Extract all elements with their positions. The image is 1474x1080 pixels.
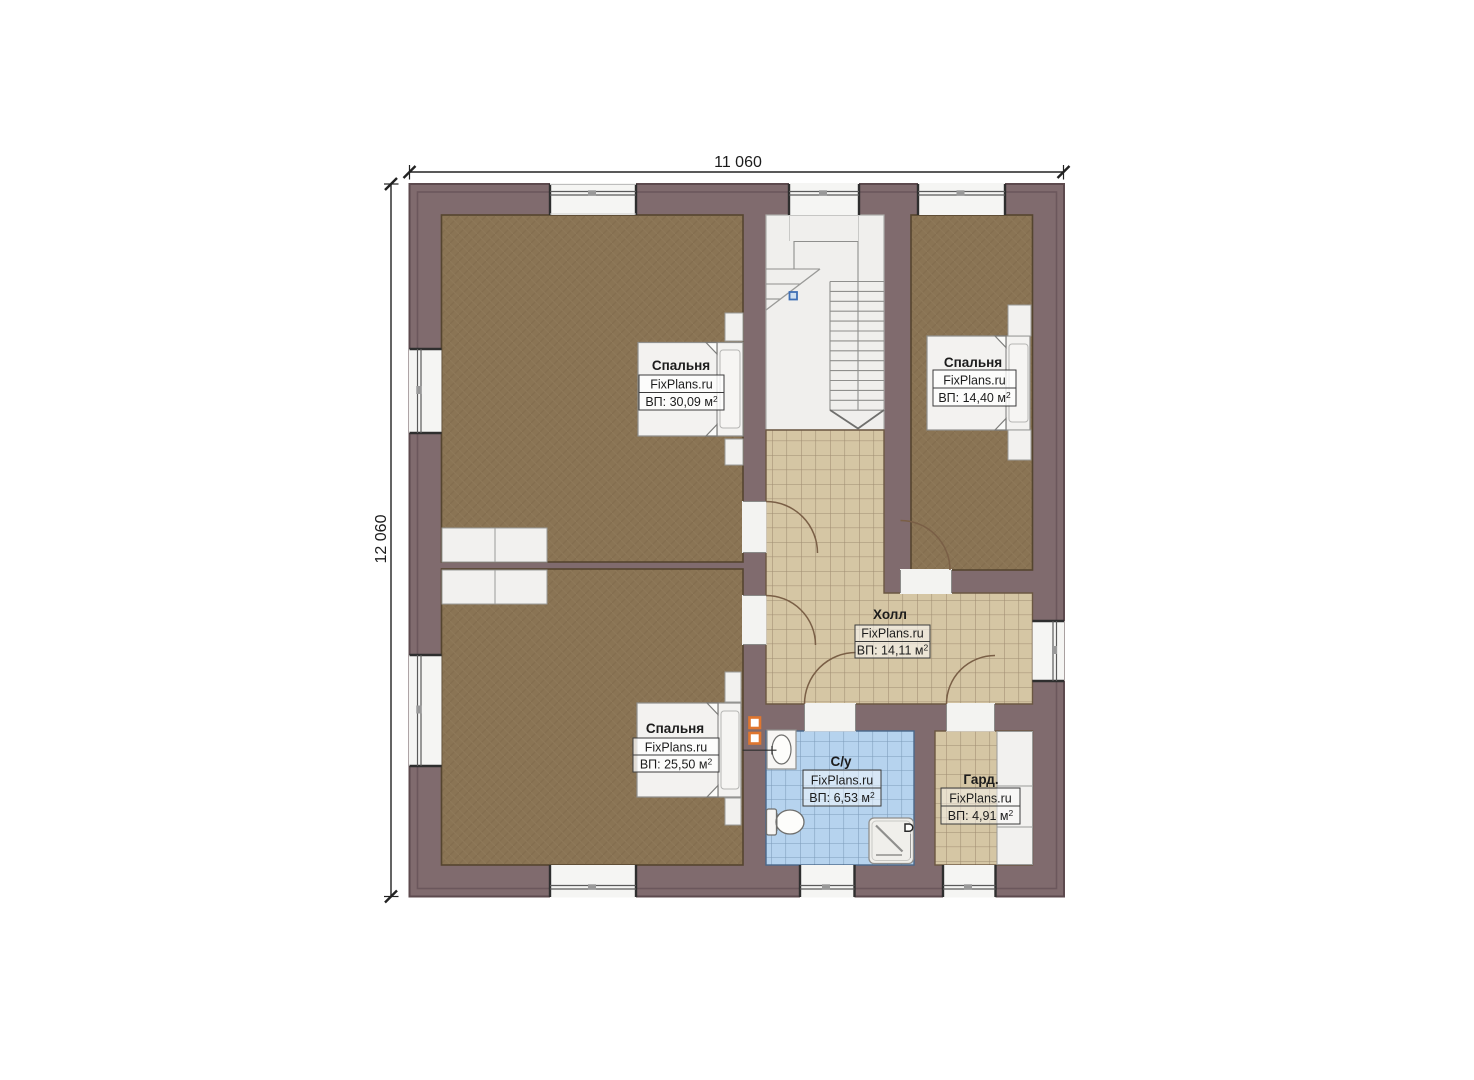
svg-text:Спальня: Спальня [646, 721, 704, 736]
svg-text:ВП: 14,40 м2: ВП: 14,40 м2 [938, 390, 1011, 405]
svg-text:11 060: 11 060 [714, 154, 762, 171]
svg-text:Спальня: Спальня [652, 358, 710, 373]
svg-text:FixPlans.ru: FixPlans.ru [943, 374, 1006, 388]
svg-text:12 060: 12 060 [373, 514, 390, 563]
svg-text:Спальня: Спальня [944, 355, 1002, 370]
svg-text:ВП: 25,50 м2: ВП: 25,50 м2 [640, 757, 713, 772]
svg-text:ВП: 14,11 м2: ВП: 14,11 м2 [857, 643, 929, 658]
svg-text:Гард.: Гард. [963, 772, 998, 787]
svg-text:FixPlans.ru: FixPlans.ru [811, 774, 874, 788]
svg-text:ВП: 30,09 м2: ВП: 30,09 м2 [645, 394, 718, 409]
svg-text:ВП: 6,53 м2: ВП: 6,53 м2 [809, 790, 875, 805]
svg-text:Холл: Холл [873, 607, 907, 622]
svg-text:FixPlans.ru: FixPlans.ru [861, 627, 924, 641]
svg-text:FixPlans.ru: FixPlans.ru [650, 378, 713, 392]
svg-text:ВП: 4,91 м2: ВП: 4,91 м2 [948, 808, 1014, 823]
svg-text:FixPlans.ru: FixPlans.ru [949, 792, 1012, 806]
svg-text:FixPlans.ru: FixPlans.ru [645, 741, 708, 755]
svg-text:С/у: С/у [830, 754, 852, 769]
